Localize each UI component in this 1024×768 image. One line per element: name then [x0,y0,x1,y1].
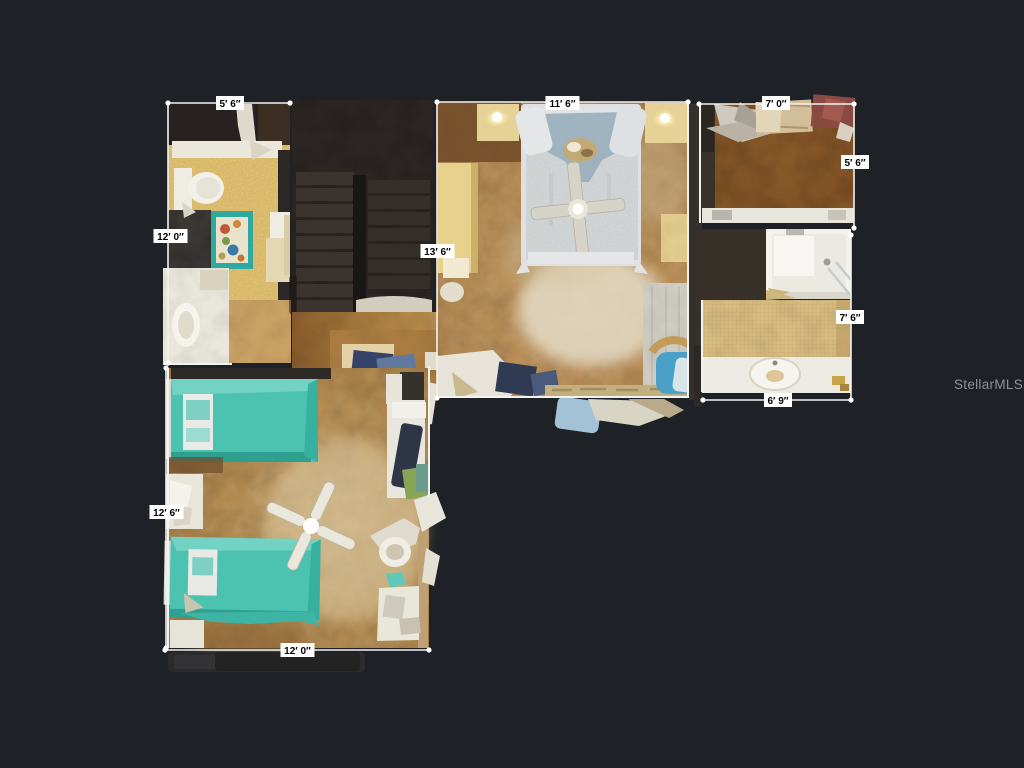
svg-text:13′ 6″: 13′ 6″ [424,247,451,258]
svg-text:7′ 0″: 7′ 0″ [765,99,786,110]
svg-text:5′ 6″: 5′ 6″ [219,99,240,110]
svg-text:11′ 6″: 11′ 6″ [549,99,575,110]
svg-text:7′ 6″: 7′ 6″ [839,313,860,324]
svg-text:StellarMLS: StellarMLS [954,377,1023,392]
svg-text:6′ 9″: 6′ 9″ [767,396,788,407]
svg-text:12′ 0″: 12′ 0″ [157,232,184,243]
svg-text:12′ 6″: 12′ 6″ [153,508,180,519]
svg-text:12′ 0″: 12′ 0″ [284,646,311,657]
svg-text:5′ 6″: 5′ 6″ [844,158,865,169]
